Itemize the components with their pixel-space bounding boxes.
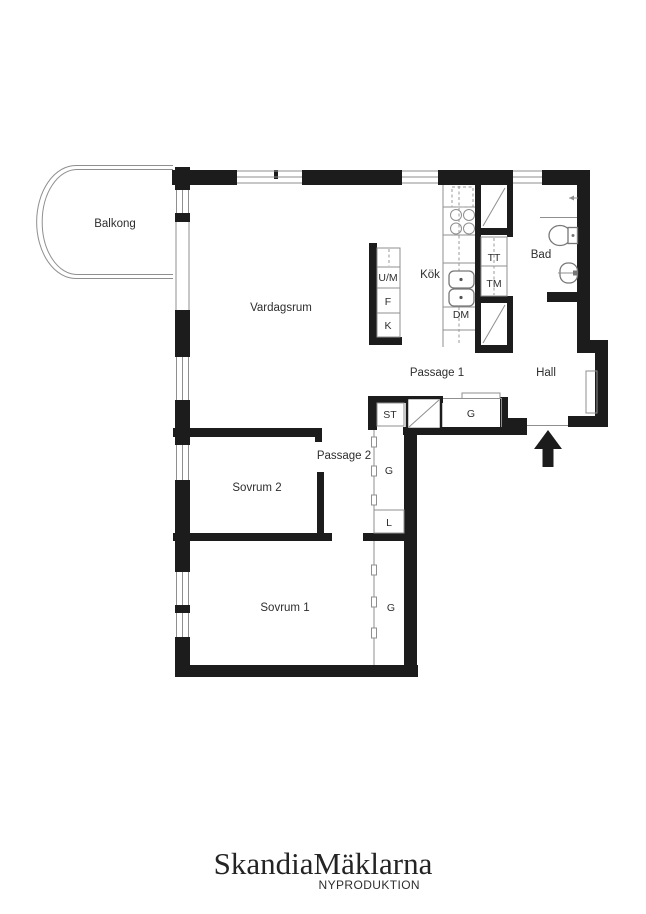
balcony-door-opening [176,222,189,310]
window-top-2 [402,171,438,183]
window-left-3 [177,445,189,480]
label-tm: TM [486,278,501,290]
upper-cabinet-dashed [452,187,473,207]
room-label-vardagsrum: Vardagsrum [250,302,312,314]
window-top-1 [237,171,302,183]
room-label-bad: Bad [531,249,551,261]
closet-g-sovrum1 [372,541,377,665]
shower-head-icon [569,196,578,201]
label-tt: TT [488,252,501,264]
window-left-1 [177,190,189,213]
floorplan-drawing: Balkong Vardagsrum Kök Bad Hall Passage … [0,0,646,914]
logo: SkandiaMäklarna NYPRODUKTION [214,846,433,892]
label-k: K [384,320,391,332]
label-st: ST [383,409,397,421]
room-label-sovrum2: Sovrum 2 [232,482,281,494]
window-left-4 [177,572,189,605]
label-g-passage1: G [467,408,475,420]
window-top-3 [510,171,542,183]
label-g-passage2: G [385,465,393,477]
toilet-icon [549,226,578,246]
room-label-balkong: Balkong [94,218,136,230]
label-g-sovrum1: G [387,602,395,614]
room-label-kok: Kök [420,269,440,281]
room-label-hall: Hall [536,367,556,379]
room-label-passage1: Passage 1 [410,367,464,379]
entrance-arrow-icon [534,430,562,467]
label-dm: DM [453,309,469,321]
room-label-sovrum1: Sovrum 1 [260,602,309,614]
sink-icon [449,271,474,306]
tall-cabinet-bottom-icon [483,305,505,343]
floorplan-page: Balkong Vardagsrum Kök Bad Hall Passage … [0,0,646,914]
washbasin-icon [558,263,578,283]
room-label-passage2: Passage 2 [317,450,371,462]
stove-icon [451,210,475,235]
closet-diagonal-cabinet [407,398,441,429]
kitchen-fixtures [377,185,507,347]
window-left-5 [177,613,189,637]
brand-wordmark: SkandiaMäklarna [214,846,433,881]
label-l: L [386,517,392,529]
brand-tagline: NYPRODUKTION [319,878,420,892]
tall-cabinet-top-icon [483,188,505,226]
exterior-walls [172,167,608,677]
window-left-2 [177,357,189,400]
label-f: F [385,296,391,308]
label-um: U/M [378,272,397,284]
bathroom-fixtures [540,196,578,284]
